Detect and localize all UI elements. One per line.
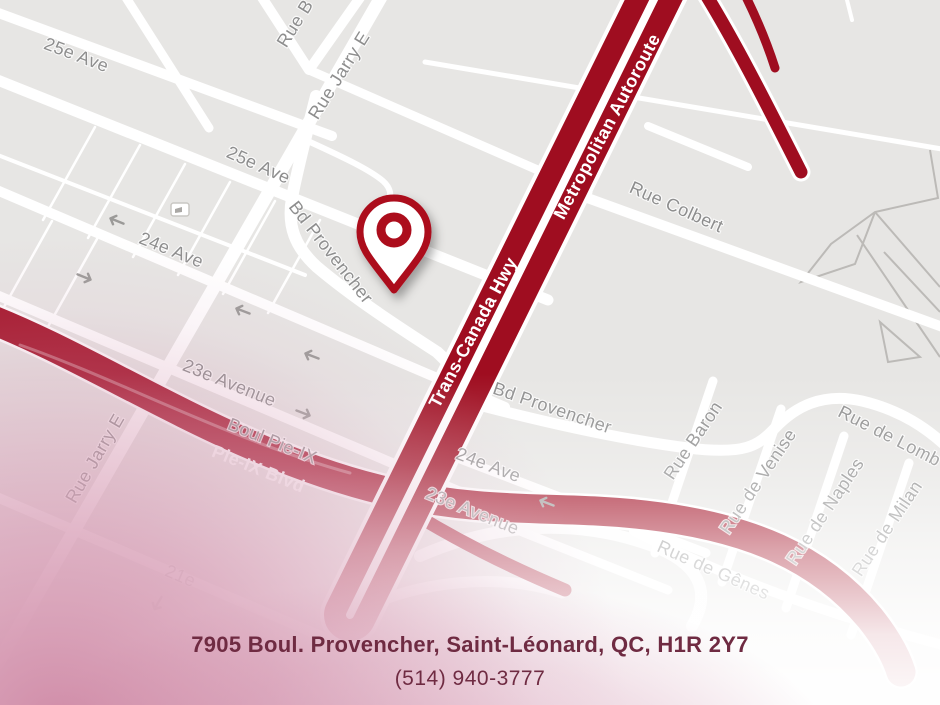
contact-footer: 7905 Boul. Provencher, Saint-Léonard, QC… xyxy=(0,632,940,691)
address-text: 7905 Boul. Provencher, Saint-Léonard, QC… xyxy=(0,632,940,658)
map-screenshot: 25e Ave 25e Ave Rue B Rue Jarry E Bd Pro… xyxy=(0,0,940,705)
pin-ring xyxy=(381,217,407,243)
building-icon xyxy=(171,203,189,216)
phone-number-text: (514) 940-3777 xyxy=(0,667,940,691)
map-canvas[interactable]: 25e Ave 25e Ave Rue B Rue Jarry E Bd Pro… xyxy=(0,0,940,705)
